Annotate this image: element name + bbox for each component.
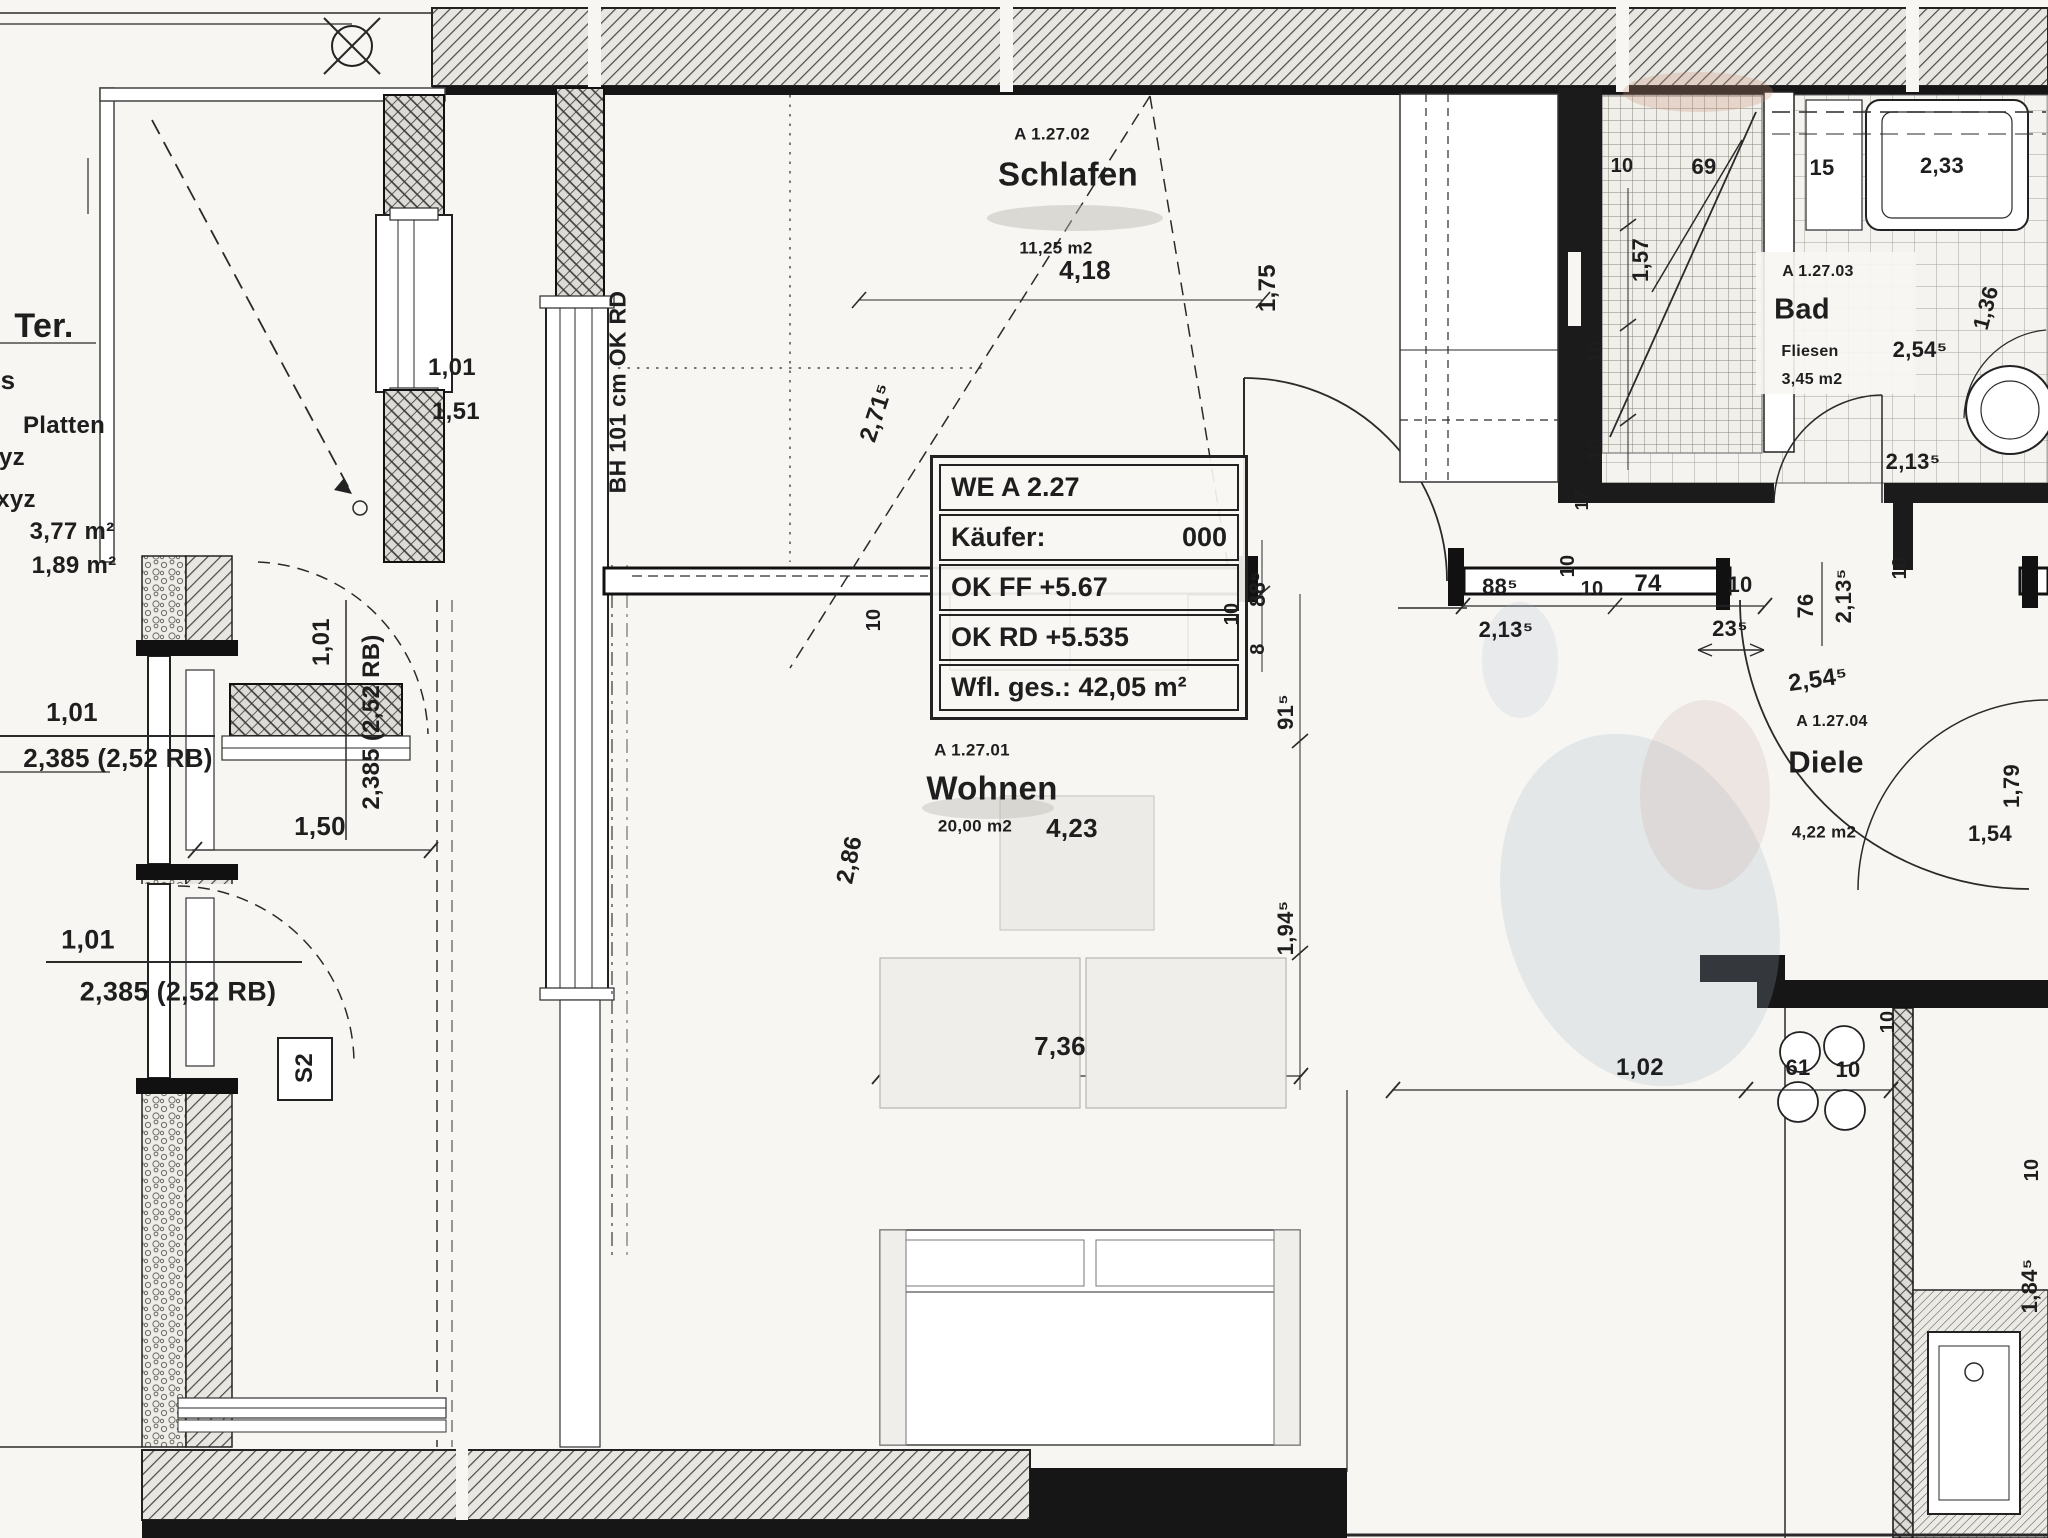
legend-s: s [1,367,16,393]
dim-bad-233: 2,33 [1920,155,1964,177]
info-ok-rd: OK RD +5.535 [939,614,1239,661]
dim-wohnen-10: 10 [864,609,884,632]
room-diele-area: 4,22 m2 [1792,824,1856,841]
dim-kitchen-10c: 10 [2022,1159,2042,1182]
dim-kitchen-184: 1,84⁵ [2019,1259,2041,1314]
legend-area-1: 3,77 m² [30,520,115,544]
info-ok-ff: OK FF +5.67 [939,564,1239,611]
dim-schlafen-right: 1,75 [1256,264,1280,312]
dim-flur-23: 23⁵ [1712,618,1748,640]
floorplan-stage: WE A 2.27 Käufer: 000 OK FF +5.67 OK RD … [0,0,2048,1538]
dim-wall-8: 8 [1248,643,1268,654]
info-buyer-label: Käufer: [951,522,1046,553]
dim-bad-10b: 10 [1586,341,1606,364]
dim-kitchen-102: 1,02 [1616,1056,1664,1080]
dim-west-window2-w: 1,01 [61,927,115,954]
dim-terrace-width: 1,50 [294,813,346,839]
dim-schlafen-width: 4,18 [1059,257,1111,283]
info-buyer: Käufer: 000 [939,514,1239,561]
dim-bad-15: 15 [1809,157,1834,179]
room-bad-area: 3,45 m2 [1782,372,1843,388]
info-buyer-value: 000 [1182,522,1227,553]
dim-baddoor-213: 2,13⁵ [1833,569,1855,624]
label-s2: S2 [293,1053,317,1083]
room-wohnen-area: 20,00 m2 [938,818,1012,835]
dim-terrace-window-w: 1,01 [428,356,476,380]
dim-balcony-door-h: 2,385 (2,52 RB) [360,634,384,809]
dim-wall-10-left: 10 [1222,603,1242,626]
room-bad-code: A 1.27.03 [1782,264,1854,280]
legend-platten: Platten [23,414,105,438]
note-window-bh: BH 101 cm OK RD [607,291,630,494]
dim-couch: 7,36 [1034,1033,1086,1059]
dim-bad-69: 69 [1691,156,1716,178]
room-schlafen-code: A 1.27.02 [1014,126,1090,143]
dim-flur-17: 17 [1573,490,1591,511]
dim-door1-left: 88⁵ [1247,571,1269,607]
info-ok-ff-value: OK FF +5.67 [951,572,1108,603]
dim-diele-10: 10 [1890,557,1910,580]
legend-area-2: 1,89 m² [32,554,117,578]
room-bad-floor: Fliesen [1781,344,1838,360]
room-diele-code: A 1.27.04 [1796,714,1868,730]
info-unit: WE A 2.27 [939,464,1239,511]
room-schlafen-area: 11,25 m2 [1019,240,1092,257]
dim-door1-total: 2,13⁵ [1479,619,1534,641]
dim-baddoor-76: 76 [1795,593,1817,618]
dim-diele-179: 1,79 [2001,764,2023,808]
info-total-area: Wfl. ges.: 42,05 m² [939,664,1239,711]
info-unit-value: WE A 2.27 [951,472,1080,503]
dim-flur-10-v: 10 [1558,555,1578,578]
dim-door1-width: 88⁵ [1482,576,1518,598]
legend-xyz: xyz [0,488,36,512]
dim-diele-154: 1,54 [1968,823,2012,845]
dim-bad-213b: 2,13⁵ [1886,451,1941,473]
dim-bad-10c: 10 [1586,439,1606,462]
dim-wohnen-width: 4,23 [1046,815,1098,841]
dim-kitchen-10a: 10 [1835,1059,1860,1081]
legend-ter: Ter. [14,309,73,343]
apartment-info-table: WE A 2.27 Käufer: 000 OK FF +5.67 OK RD … [930,455,1248,720]
dim-bad-157: 1,57 [1630,238,1652,282]
dim-west-window1-h: 2,385 (2,52 RB) [23,745,212,771]
dim-kitchen-10b: 10 [1878,1011,1898,1034]
dim-flur-74: 74 [1634,572,1661,596]
room-schlafen-name: Schlafen [998,158,1138,191]
legend-yz: yz [0,446,25,470]
dim-balcony-door-w: 1,01 [310,618,334,666]
room-diele-name: Diele [1788,747,1864,778]
info-total-area-value: Wfl. ges.: 42,05 m² [951,672,1187,703]
dim-terrace-window-h: 1,51 [432,400,480,424]
room-wohnen-code: A 1.27.01 [934,742,1010,759]
room-bad-name: Bad [1774,296,1830,325]
room-wohnen-name: Wohnen [926,772,1057,805]
info-ok-rd-value: OK RD +5.535 [951,622,1129,653]
dim-west-window1-w: 1,01 [46,699,98,725]
dim-bad-254: 2,54⁵ [1893,339,1948,361]
dim-wohnen-194: 1,94⁵ [1275,901,1297,956]
dim-wohnen-91: 91⁵ [1275,694,1297,730]
dim-bad-10a: 10 [1611,156,1634,176]
dim-flur-10-h1: 10 [1581,579,1604,599]
dim-west-window2-h: 2,385 (2,52 RB) [80,979,277,1006]
dim-flur-10-h2: 10 [1727,574,1752,596]
dim-kitchen-61: 61 [1785,1057,1810,1079]
